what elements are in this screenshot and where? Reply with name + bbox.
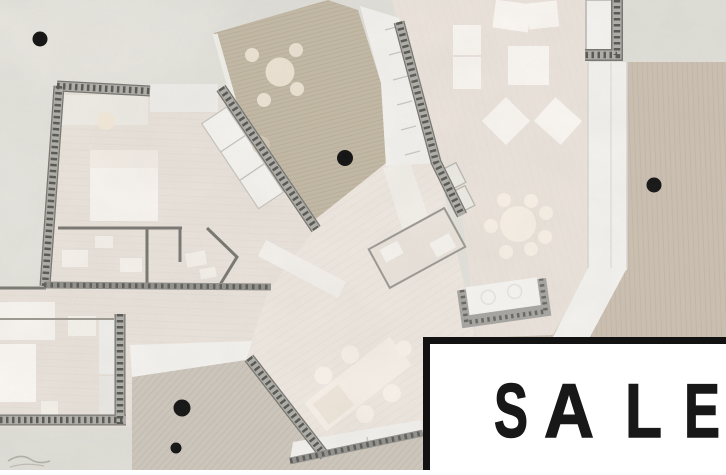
svg-text:S: S — [494, 369, 528, 454]
svg-text:L: L — [625, 369, 662, 454]
svg-text:E: E — [684, 369, 720, 454]
svg-text:A: A — [544, 369, 594, 454]
